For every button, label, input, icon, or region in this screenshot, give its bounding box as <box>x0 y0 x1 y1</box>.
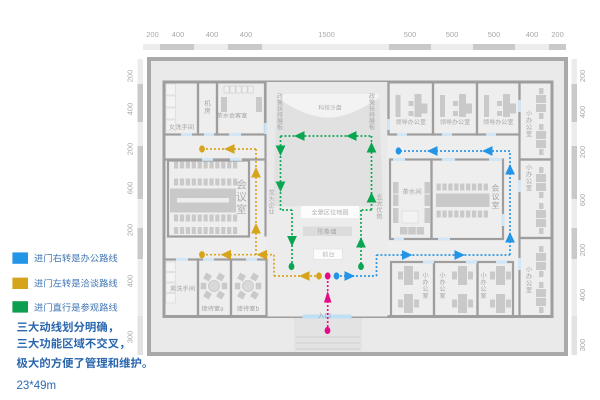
svg-text:200: 200 <box>126 70 135 83</box>
svg-text:600: 600 <box>126 182 135 195</box>
svg-text:1500: 1500 <box>318 30 335 39</box>
svg-text:200: 200 <box>551 30 564 39</box>
svg-text:400: 400 <box>126 103 135 116</box>
svg-text:500: 500 <box>404 30 417 39</box>
svg-text:200: 200 <box>146 30 159 39</box>
svg-text:400: 400 <box>578 289 587 302</box>
svg-text:600: 600 <box>578 194 587 207</box>
svg-text:200: 200 <box>578 146 587 159</box>
svg-text:200: 200 <box>578 244 587 257</box>
svg-text:300: 300 <box>126 331 135 344</box>
svg-text:200: 200 <box>578 70 587 83</box>
svg-text:400: 400 <box>578 106 587 119</box>
svg-text:400: 400 <box>172 30 185 39</box>
svg-text:300: 300 <box>578 339 587 352</box>
svg-text:200: 200 <box>126 224 135 237</box>
svg-text:400: 400 <box>126 275 135 288</box>
svg-text:400: 400 <box>526 30 539 39</box>
svg-text:23*49m: 23*49m <box>17 380 57 392</box>
svg-text:500: 500 <box>446 30 459 39</box>
svg-text:200: 200 <box>126 143 135 156</box>
svg-text:400: 400 <box>240 30 253 39</box>
svg-text:500: 500 <box>488 30 501 39</box>
svg-text:400: 400 <box>206 30 219 39</box>
